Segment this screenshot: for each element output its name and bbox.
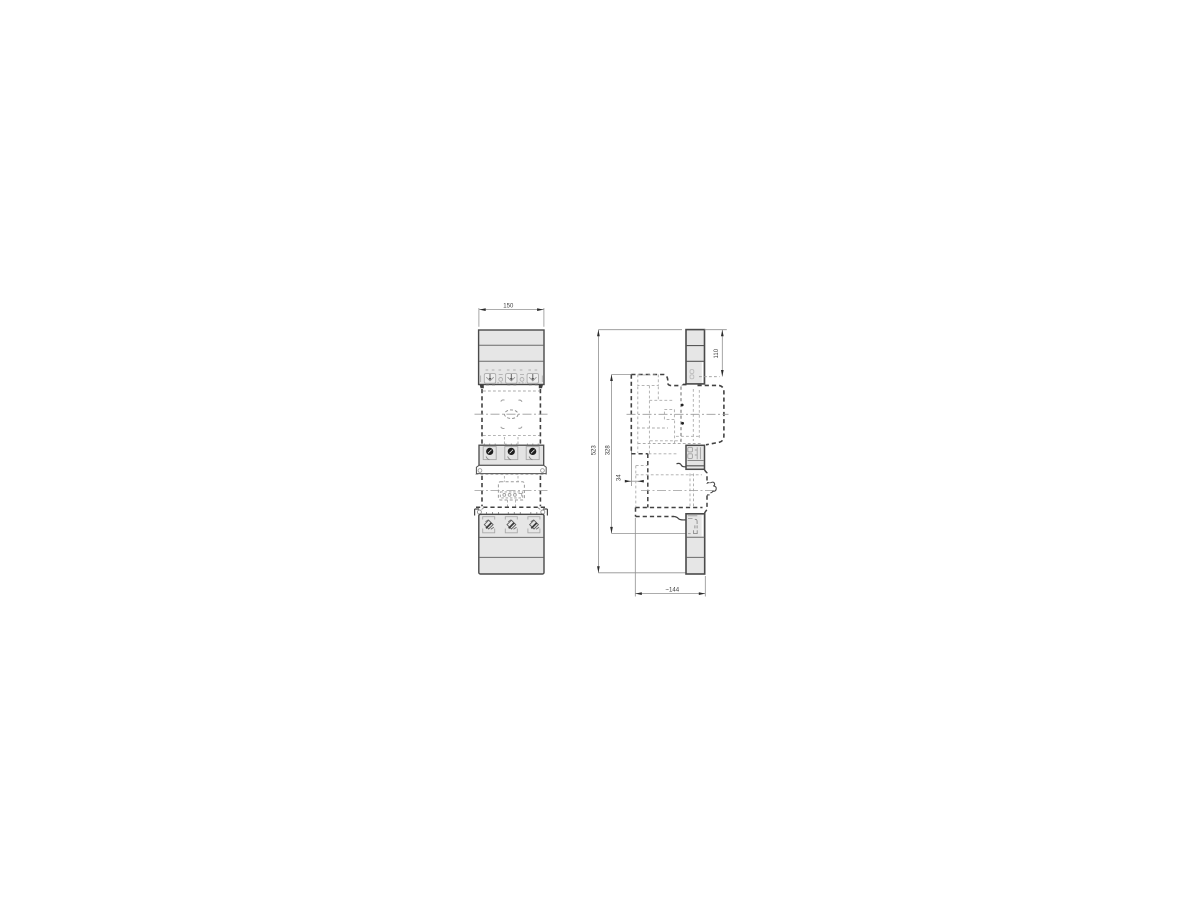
svg-text:523: 523 [591,445,597,456]
svg-text:~144: ~144 [665,586,679,593]
svg-text:110: 110 [714,348,720,358]
svg-text:328: 328 [606,445,612,456]
svg-text:34: 34 [617,474,623,481]
svg-text:150: 150 [503,303,514,309]
